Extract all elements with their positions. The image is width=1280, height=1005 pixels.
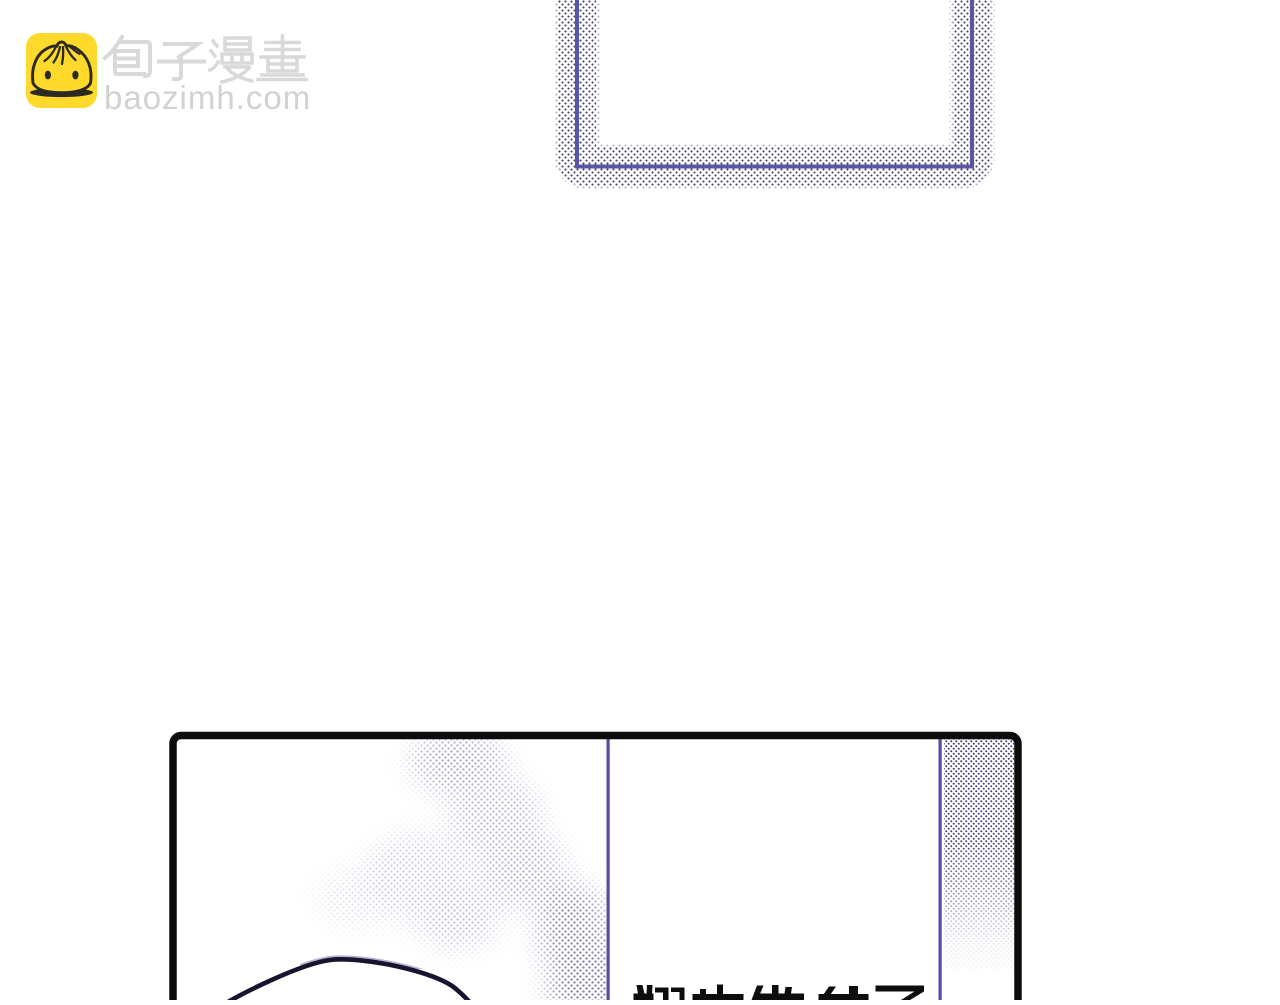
svg-text:baozimh.com: baozimh.com bbox=[104, 79, 311, 116]
